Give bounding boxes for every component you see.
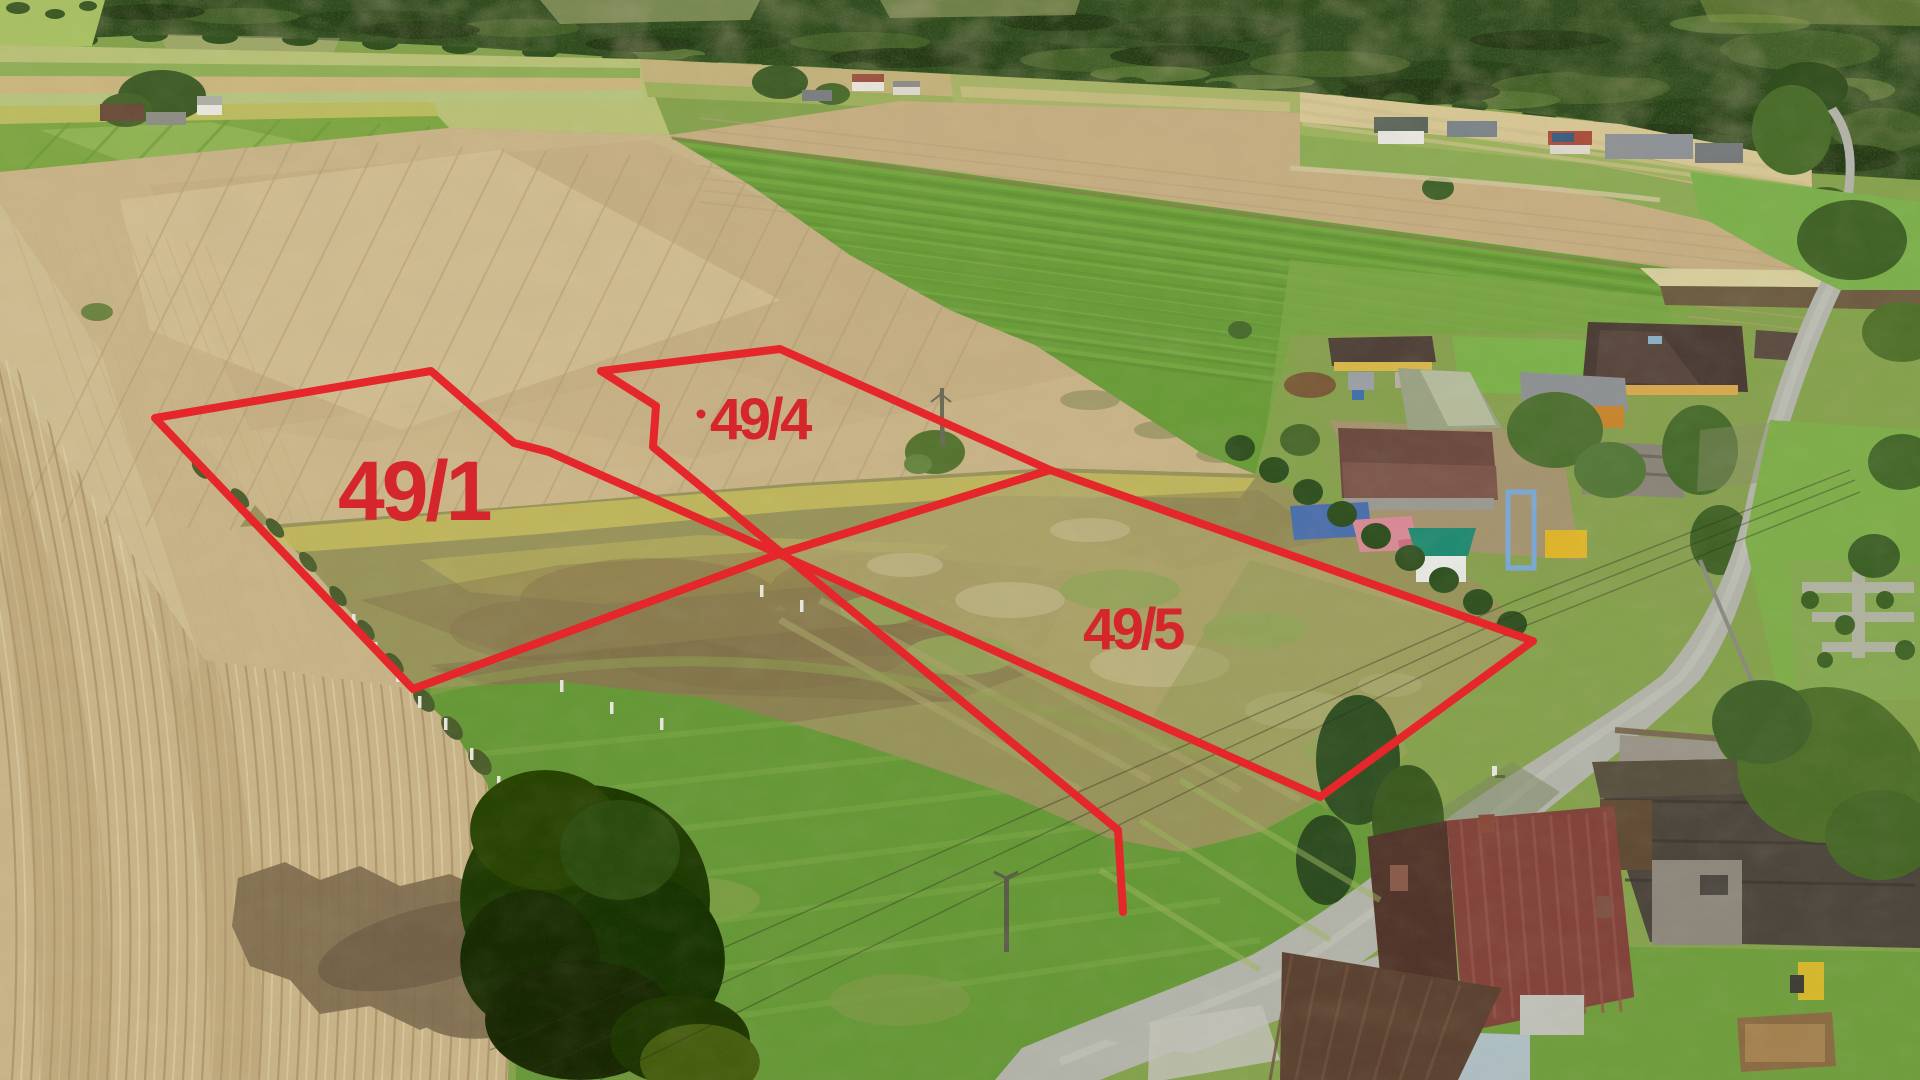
svg-text:49/4: 49/4: [710, 387, 812, 452]
svg-text:49/5: 49/5: [1083, 597, 1184, 662]
svg-text:49/1: 49/1: [338, 444, 491, 538]
